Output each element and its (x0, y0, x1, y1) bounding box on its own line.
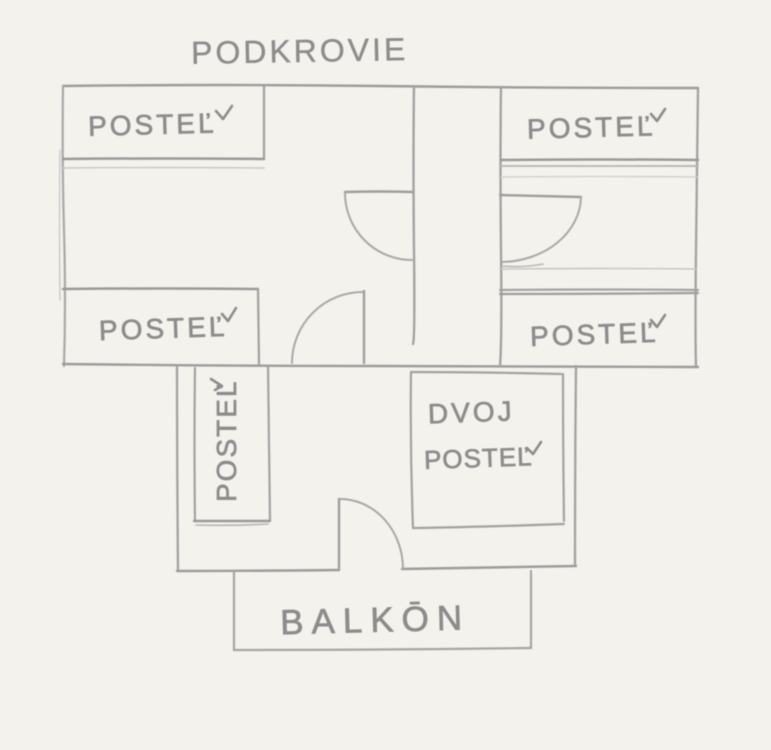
svg-text:POSTEĽ: POSTEĽ (88, 108, 217, 142)
svg-text:PODKROVIE: PODKROVIE (191, 31, 409, 71)
svg-text:POSTEĽ: POSTEĽ (98, 311, 227, 346)
svg-text:POSTEĽ: POSTEĽ (211, 380, 242, 502)
svg-text:POSTEĽ: POSTEĽ (527, 110, 656, 144)
svg-text:POSTEĽ: POSTEĽ (530, 317, 659, 352)
svg-text:POSTEĽ: POSTEĽ (424, 441, 534, 475)
svg-text:BALKŌN: BALKŌN (280, 598, 471, 642)
svg-text:DVOJ: DVOJ (427, 395, 515, 429)
